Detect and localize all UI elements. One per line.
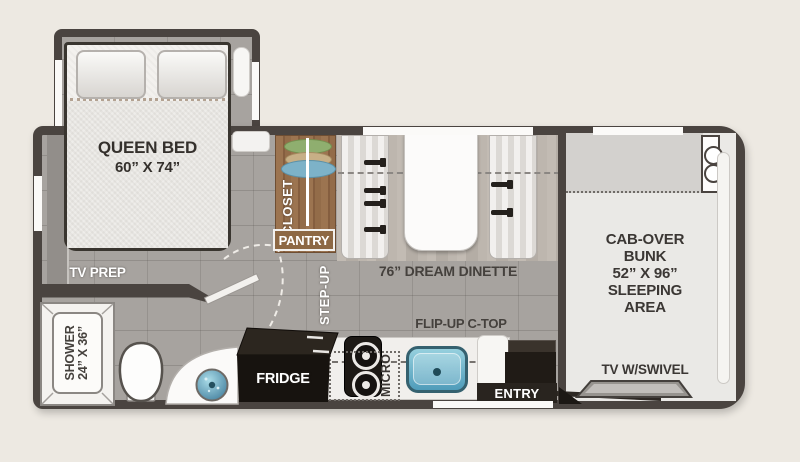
window (593, 127, 683, 135)
bunk-edge-dotted-line (566, 191, 703, 193)
shower-label: SHOWER 24” X 36” (64, 308, 92, 398)
tv-swivel-label: TV W/SWIVEL (585, 363, 705, 378)
cab-over-line: AREA (585, 299, 705, 316)
pillow-icon (76, 50, 146, 99)
window (252, 62, 259, 120)
tv-prep-label: TV PREP (55, 266, 140, 281)
cab-divider-wall (558, 133, 566, 402)
shower-dimensions: 24” X 36” (76, 326, 90, 380)
dinette-bench-right (489, 135, 537, 259)
cab-dash-area (566, 133, 703, 193)
windshield (717, 152, 730, 384)
rv-floorplan: QUEEN BED 60” X 74” TV PREP CLOSET PANTR… (0, 0, 800, 462)
shower-text: SHOWER (63, 325, 77, 380)
bedroom-cabinet (232, 131, 270, 152)
seatbelt-icon (364, 188, 385, 193)
window (34, 176, 42, 231)
cab-over-line: 52” X 96” (585, 265, 705, 282)
seatbelt-icon (364, 227, 385, 232)
seatbelt-icon (364, 201, 385, 206)
pillow-icon (157, 50, 227, 99)
microwave-label: MICRO (380, 349, 396, 402)
step-up-label: STEP-UP (318, 258, 334, 332)
sink-drain-icon (433, 368, 441, 376)
window (363, 127, 533, 135)
closet-rod (306, 138, 309, 226)
cab-over-line: SLEEPING (585, 282, 705, 299)
seatbelt-icon (491, 182, 512, 187)
entry-threshold (433, 401, 553, 408)
cab-over-bunk-label: CAB-OVER BUNK 52” X 96” SLEEPING AREA (585, 231, 705, 316)
seatbelt-icon (364, 160, 385, 165)
flip-up-ctop-label: FLIP-UP C-TOP (400, 317, 522, 331)
pantry-label: PANTRY (279, 233, 330, 248)
queen-bed-dimensions: 60” X 74” (115, 159, 180, 176)
queen-bed-text: QUEEN BED (98, 138, 197, 157)
dinette-table (404, 133, 478, 251)
dinette-label: 76” DREAM DINETTE (357, 264, 539, 279)
nightstand (233, 47, 250, 97)
seatbelt-icon (491, 210, 512, 215)
window (55, 60, 62, 126)
cab-over-line: CAB-OVER (585, 231, 705, 248)
cab-over-line: BUNK (585, 248, 705, 265)
pantry-cabinet: PANTRY (273, 229, 335, 251)
dinette-bench-left (341, 135, 389, 259)
entry-label: ENTRY (479, 387, 555, 401)
queen-bed-label: QUEEN BED 60” X 74” (80, 139, 215, 176)
fridge-label: FRIDGE (243, 372, 323, 388)
